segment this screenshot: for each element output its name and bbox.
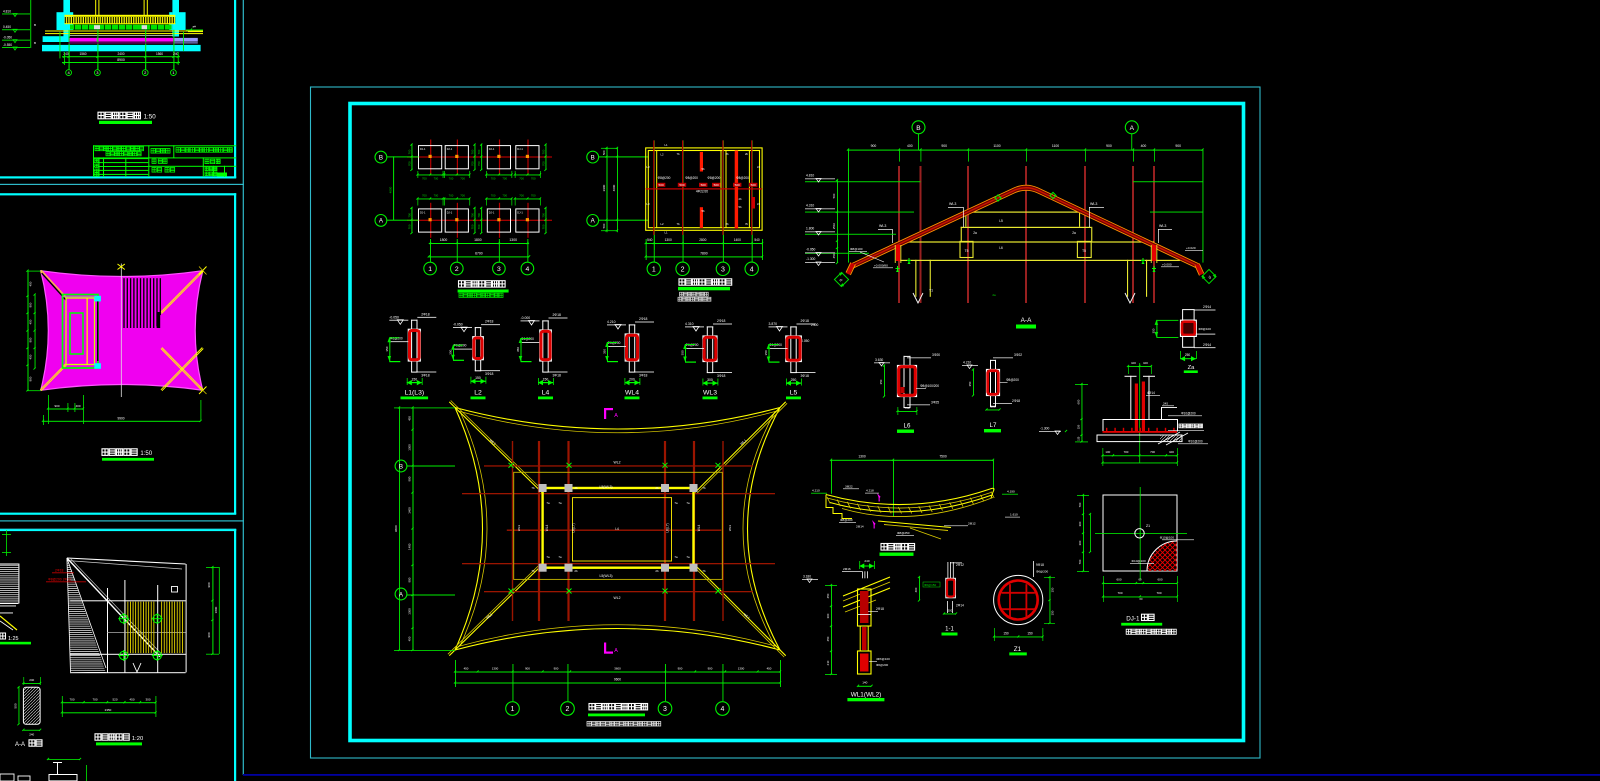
- svg-text:450: 450: [464, 667, 469, 671]
- svg-text:7b: 7b: [745, 222, 749, 226]
- svg-text:+0.020: +0.020: [1186, 246, 1196, 250]
- svg-text:4Φ22/20: 4Φ22/20: [696, 190, 709, 194]
- svg-text:300: 300: [707, 378, 713, 382]
- svg-text:7a: 7a: [558, 555, 562, 559]
- svg-text:2Φ18: 2Φ18: [639, 317, 647, 321]
- svg-text:2b: 2b: [738, 197, 742, 201]
- svg-text:3.630: 3.630: [875, 358, 883, 362]
- svg-text:300: 300: [1078, 521, 1082, 526]
- svg-text:3Φ18: 3Φ18: [485, 372, 493, 376]
- svg-text:7b: 7b: [676, 222, 680, 226]
- svg-text:245: 245: [1163, 402, 1168, 406]
- svg-text:7a: 7a: [546, 555, 550, 559]
- svg-text:2Φ14: 2Φ14: [1203, 343, 1211, 347]
- svg-text:9600: 9600: [394, 525, 398, 532]
- svg-text:3Φ18: 3Φ18: [801, 374, 809, 378]
- svg-text:L2: L2: [660, 222, 664, 226]
- svg-text:150: 150: [1077, 424, 1081, 429]
- svg-text:700: 700: [491, 194, 496, 198]
- svg-text:Φ8@200: Φ8@200: [1006, 378, 1019, 382]
- svg-text:DJ-1: DJ-1: [517, 210, 523, 214]
- svg-text:1560: 1560: [156, 52, 163, 56]
- svg-text:Φ10@200: Φ10@200: [1188, 440, 1203, 444]
- svg-text:+0.000: +0.000: [1162, 263, 1172, 267]
- svg-text:L4: L4: [615, 527, 619, 531]
- svg-text:500: 500: [714, 183, 719, 187]
- svg-text:700: 700: [460, 194, 465, 198]
- svg-text:240: 240: [29, 678, 34, 682]
- svg-text:-0.550: -0.550: [3, 43, 12, 47]
- svg-text:2b: 2b: [745, 152, 749, 156]
- svg-text:Φ8@200: Φ8@200: [685, 176, 698, 180]
- svg-text:100: 100: [1078, 436, 1081, 441]
- svg-text:2Φ18: 2Φ18: [717, 319, 725, 323]
- svg-text:500: 500: [751, 183, 756, 187]
- svg-text:DJ-1: DJ-1: [1126, 615, 1140, 622]
- svg-text:3Φ20: 3Φ20: [932, 353, 940, 357]
- svg-text:350: 350: [385, 346, 389, 351]
- svg-text:1800: 1800: [440, 238, 448, 242]
- svg-text:2Φ18: 2Φ18: [553, 313, 561, 317]
- svg-text:400: 400: [75, 404, 80, 408]
- svg-text:700: 700: [471, 161, 475, 166]
- svg-text:1: 1: [511, 706, 515, 713]
- svg-text:7a: 7a: [674, 555, 678, 559]
- svg-text:4.210: 4.210: [963, 361, 971, 365]
- svg-text:4.310: 4.310: [806, 204, 814, 208]
- svg-text:2Φ18: 2Φ18: [876, 607, 884, 611]
- svg-text:140: 140: [862, 680, 867, 684]
- svg-text:150: 150: [1051, 587, 1055, 592]
- svg-text:A-A: A-A: [15, 742, 25, 748]
- svg-text:Φ8@200 2Φ12: Φ8@200 2Φ12: [48, 578, 71, 582]
- svg-text:700: 700: [1078, 502, 1082, 507]
- svg-text:2Φ12: 2Φ12: [956, 563, 964, 567]
- svg-text:2b: 2b: [655, 486, 659, 490]
- svg-text:1100: 1100: [1052, 144, 1059, 148]
- svg-text:L2: L2: [474, 389, 482, 396]
- svg-text:L1: L1: [664, 231, 668, 235]
- svg-text:4: 4: [750, 266, 754, 273]
- svg-text:5b: 5b: [738, 205, 742, 209]
- svg-text:1300: 1300: [408, 444, 412, 451]
- svg-text:1300: 1300: [738, 667, 745, 671]
- svg-text:WL2: WL2: [614, 596, 621, 600]
- svg-text:2Φ18: 2Φ18: [485, 320, 493, 324]
- svg-text:540: 540: [754, 238, 760, 242]
- svg-text:1800: 1800: [474, 238, 482, 242]
- svg-text:700: 700: [408, 161, 412, 166]
- svg-text:900: 900: [554, 667, 559, 671]
- svg-text:T1: T1: [929, 289, 933, 293]
- svg-text:Z1: Z1: [1014, 646, 1022, 653]
- svg-text:WL3: WL3: [879, 224, 886, 228]
- svg-text:2800: 2800: [699, 238, 706, 242]
- svg-text:B: B: [916, 125, 921, 132]
- svg-text:9600: 9600: [614, 678, 621, 682]
- svg-text:3Φ18: 3Φ18: [639, 374, 647, 378]
- svg-text:-0.050: -0.050: [453, 323, 463, 327]
- svg-text:400: 400: [1141, 144, 1147, 148]
- svg-text:3.180: 3.180: [803, 575, 811, 579]
- svg-text:T5: T5: [965, 249, 969, 253]
- svg-text:210: 210: [826, 660, 830, 665]
- svg-text:Φ8@100: Φ8@100: [1199, 327, 1212, 331]
- svg-text:WL3: WL3: [703, 389, 717, 396]
- svg-text:2a: 2a: [1072, 231, 1076, 235]
- svg-text:450: 450: [826, 636, 830, 641]
- svg-text:350: 350: [879, 379, 883, 384]
- svg-text:A-A: A-A: [1021, 317, 1032, 324]
- svg-text:DJ-1: DJ-1: [489, 147, 495, 151]
- svg-text:100: 100: [1169, 450, 1174, 454]
- svg-text:450: 450: [767, 667, 772, 671]
- svg-text:1560: 1560: [79, 52, 86, 56]
- svg-text:450: 450: [29, 319, 33, 324]
- svg-text:350: 350: [1151, 328, 1155, 333]
- svg-text:150: 150: [475, 376, 481, 380]
- svg-text:2a: 2a: [992, 293, 996, 297]
- svg-text:5b: 5b: [701, 209, 705, 213]
- svg-text:Φ8@100/200: Φ8@100/200: [920, 384, 939, 388]
- svg-text:500: 500: [602, 150, 606, 155]
- svg-text:450: 450: [129, 698, 134, 702]
- svg-text:150: 150: [543, 378, 549, 382]
- svg-text:350: 350: [968, 381, 972, 386]
- svg-text:900: 900: [678, 667, 683, 671]
- svg-text:1.800: 1.800: [806, 227, 814, 231]
- svg-text:700: 700: [449, 194, 454, 198]
- svg-text:7a: 7a: [558, 501, 562, 505]
- svg-text:1:20: 1:20: [132, 736, 143, 742]
- svg-text:7b: 7b: [702, 486, 706, 490]
- svg-text:7a: 7a: [686, 555, 690, 559]
- svg-text:B: B: [399, 463, 403, 470]
- svg-text:700: 700: [502, 177, 507, 181]
- svg-text:Φ8@200: Φ8@200: [736, 176, 749, 180]
- svg-text:700: 700: [69, 698, 74, 702]
- svg-text:Φ8@200: Φ8@200: [707, 176, 720, 180]
- svg-text:L5: L5: [757, 202, 761, 206]
- svg-text:700: 700: [542, 149, 546, 154]
- svg-text:900: 900: [54, 404, 59, 408]
- svg-text:3.870: 3.870: [769, 322, 778, 326]
- svg-text:4: 4: [721, 706, 725, 713]
- svg-text:4.210: 4.210: [812, 489, 820, 493]
- svg-text:2a: 2a: [973, 231, 977, 235]
- svg-text:100: 100: [1131, 361, 1136, 365]
- svg-text:900: 900: [408, 577, 412, 582]
- svg-text:Φ10@100: Φ10@100: [1160, 536, 1174, 540]
- svg-text:L5: L5: [999, 219, 1003, 223]
- svg-text:4Φ14: 4Φ14: [1147, 391, 1155, 395]
- svg-text:700: 700: [92, 698, 97, 702]
- svg-text:500: 500: [735, 183, 740, 187]
- svg-text:WL3: WL3: [1159, 224, 1166, 228]
- svg-text:1:50: 1:50: [144, 113, 157, 120]
- svg-text:WL3: WL3: [949, 202, 956, 206]
- svg-text:2Φ18: 2Φ18: [801, 319, 809, 323]
- svg-text:L3: L3: [646, 165, 650, 169]
- svg-text:700: 700: [491, 177, 496, 181]
- svg-text:500: 500: [832, 193, 836, 198]
- svg-text:WL3: WL3: [517, 525, 521, 532]
- svg-text:2Φ16: 2Φ16: [843, 567, 851, 571]
- svg-text:350: 350: [681, 350, 685, 355]
- svg-text:7b: 7b: [531, 569, 535, 573]
- svg-text:250: 250: [791, 378, 797, 382]
- svg-text:4.210: 4.210: [607, 320, 616, 324]
- svg-text:700: 700: [408, 213, 412, 218]
- svg-text:3: 3: [663, 706, 667, 713]
- svg-text:500: 500: [679, 183, 684, 187]
- svg-text:900: 900: [1106, 144, 1112, 148]
- svg-text:1: 1: [652, 266, 656, 273]
- svg-text:1300: 1300: [408, 608, 412, 615]
- svg-text:L1: L1: [664, 143, 668, 147]
- svg-text:2: 2: [455, 266, 459, 273]
- svg-text:600: 600: [1157, 578, 1162, 582]
- svg-text:6700: 6700: [475, 252, 483, 256]
- svg-text:WL1(WL2): WL1(WL2): [851, 691, 882, 698]
- svg-text:2b: 2b: [655, 569, 659, 573]
- svg-text:700: 700: [422, 194, 427, 198]
- svg-text:2: 2: [681, 266, 685, 273]
- svg-text:700: 700: [471, 213, 475, 218]
- svg-text:1400: 1400: [734, 238, 741, 242]
- svg-text:750: 750: [904, 406, 909, 410]
- svg-text:700: 700: [502, 194, 507, 198]
- svg-text:Z1: Z1: [1146, 524, 1150, 528]
- svg-text:WL3: WL3: [728, 525, 732, 532]
- svg-text:A: A: [614, 413, 618, 419]
- svg-text:L4: L4: [542, 389, 550, 396]
- svg-text:-0.050: -0.050: [3, 36, 12, 40]
- svg-text:150: 150: [411, 378, 417, 382]
- svg-text:WL3: WL3: [1090, 202, 1097, 206]
- svg-text:4.218: 4.218: [866, 489, 874, 493]
- svg-text:3Φ18: 3Φ18: [553, 374, 561, 378]
- svg-text:-0.050: -0.050: [806, 248, 816, 252]
- svg-text:100: 100: [1143, 361, 1148, 365]
- svg-text:7b: 7b: [676, 152, 680, 156]
- svg-text:200: 200: [948, 609, 953, 613]
- svg-text:4.810: 4.810: [3, 9, 11, 13]
- svg-text:500: 500: [701, 183, 706, 187]
- svg-text:400: 400: [907, 144, 913, 148]
- svg-text:WL4: WL4: [697, 525, 701, 532]
- svg-text:350: 350: [516, 347, 520, 352]
- svg-text:7500: 7500: [939, 455, 947, 459]
- svg-text:Φ8@250: Φ8@250: [897, 531, 910, 535]
- svg-text:700: 700: [1124, 450, 1129, 454]
- svg-text:1:25: 1:25: [8, 636, 19, 642]
- svg-text:3Φ22: 3Φ22: [1014, 353, 1022, 357]
- svg-text:a#: a#: [193, 25, 197, 29]
- svg-text:4000: 4000: [389, 186, 393, 193]
- svg-text:3Φ25: 3Φ25: [931, 401, 939, 405]
- svg-text:350: 350: [764, 350, 768, 355]
- svg-text:450: 450: [832, 253, 836, 258]
- svg-text:Φ10@100: Φ10@100: [1132, 559, 1146, 563]
- svg-text:L1(L3): L1(L3): [404, 389, 424, 396]
- svg-text:DJ-1: DJ-1: [420, 147, 426, 151]
- svg-text:700: 700: [542, 224, 546, 229]
- svg-text:7800: 7800: [700, 252, 708, 256]
- svg-text:700: 700: [542, 213, 546, 218]
- svg-text:L6: L6: [904, 423, 911, 430]
- svg-text:9900: 9900: [117, 416, 124, 420]
- svg-text:-0.050: -0.050: [389, 315, 399, 319]
- svg-text:2Φ12: 2Φ12: [968, 522, 976, 526]
- svg-text:1400: 1400: [408, 543, 412, 550]
- svg-text:L5(WL3): L5(WL3): [599, 485, 612, 489]
- svg-text:4: 4: [526, 266, 530, 273]
- svg-text:2Φ14: 2Φ14: [856, 525, 864, 529]
- svg-text:2b: 2b: [725, 222, 729, 226]
- svg-text:2Φ18: 2Φ18: [421, 312, 429, 316]
- svg-text:250: 250: [1185, 353, 1191, 357]
- svg-text:700: 700: [519, 177, 524, 181]
- svg-text:L5: L5: [790, 389, 798, 396]
- svg-text:2900: 2900: [602, 184, 606, 191]
- svg-text:1100: 1100: [993, 144, 1000, 148]
- svg-text:900: 900: [207, 582, 211, 587]
- svg-text:2b: 2b: [574, 569, 578, 573]
- svg-text:700: 700: [477, 213, 481, 218]
- svg-text:WL4: WL4: [625, 389, 639, 396]
- svg-text:700: 700: [471, 149, 475, 154]
- svg-text:Φ8@100: Φ8@100: [850, 247, 863, 251]
- svg-text:Φ10@200: Φ10@200: [1181, 412, 1196, 416]
- svg-text:7b: 7b: [531, 486, 535, 490]
- svg-text:900: 900: [29, 337, 33, 342]
- svg-text:4.810: 4.810: [806, 174, 814, 178]
- svg-text:700: 700: [519, 194, 524, 198]
- svg-text:4000: 4000: [612, 184, 616, 191]
- svg-text:-1.300: -1.300: [1040, 427, 1050, 431]
- svg-text:350: 350: [603, 349, 607, 354]
- svg-text:5b: 5b: [701, 167, 705, 171]
- svg-text:700: 700: [422, 177, 427, 181]
- svg-text:B: B: [34, 41, 36, 45]
- svg-text:600: 600: [1116, 578, 1121, 582]
- svg-text:1:50: 1:50: [140, 451, 152, 457]
- svg-text:900: 900: [871, 144, 877, 148]
- svg-text:450: 450: [408, 416, 412, 421]
- svg-text:9Φ18: 9Φ18: [1036, 563, 1044, 567]
- svg-text:700: 700: [408, 149, 412, 154]
- svg-text:WL4: WL4: [545, 525, 549, 532]
- svg-text:B: B: [34, 23, 36, 27]
- svg-text:150: 150: [1027, 632, 1033, 636]
- svg-text:700: 700: [449, 177, 454, 181]
- svg-text:700: 700: [460, 177, 465, 181]
- svg-text:500: 500: [659, 183, 664, 187]
- svg-text:Φ6@200: Φ6@200: [876, 663, 888, 667]
- svg-text:7a: 7a: [674, 501, 678, 505]
- svg-text:700: 700: [1156, 591, 1161, 595]
- svg-text:900: 900: [408, 476, 412, 481]
- svg-text:L6(L7): L6(L7): [572, 523, 576, 532]
- svg-text:L5: L5: [757, 165, 761, 169]
- svg-text:520: 520: [112, 698, 117, 702]
- svg-text:150: 150: [1003, 632, 1009, 636]
- svg-text:3Φ18: 3Φ18: [421, 374, 429, 378]
- svg-text:900: 900: [525, 667, 530, 671]
- svg-text:450: 450: [29, 354, 33, 359]
- svg-text:1: 1: [428, 266, 432, 273]
- svg-text:4.310: 4.310: [685, 322, 694, 326]
- svg-text:Φ8@200: Φ8@200: [840, 518, 853, 522]
- svg-text:700: 700: [471, 224, 475, 229]
- svg-text:240: 240: [864, 559, 869, 563]
- svg-text:WL2: WL2: [614, 461, 621, 465]
- svg-text:A: A: [614, 648, 618, 654]
- svg-text:DJ-1: DJ-1: [447, 210, 453, 214]
- svg-text:7a: 7a: [546, 501, 550, 505]
- svg-text:4.190: 4.190: [1007, 490, 1015, 494]
- svg-text:100: 100: [1105, 450, 1110, 454]
- svg-text:300: 300: [826, 613, 830, 618]
- svg-text:DJ-1: DJ-1: [420, 210, 426, 214]
- svg-text:1300: 1300: [492, 667, 499, 671]
- svg-text:700: 700: [531, 194, 536, 198]
- svg-text:3: 3: [721, 266, 725, 273]
- svg-text:-1.300: -1.300: [806, 257, 816, 261]
- svg-text:200: 200: [629, 378, 635, 382]
- svg-text:L6(L7): L6(L7): [666, 523, 670, 532]
- svg-text:2b: 2b: [725, 152, 729, 156]
- svg-text:2Φ14: 2Φ14: [1203, 305, 1211, 309]
- svg-text:700: 700: [408, 224, 412, 229]
- svg-text:1.610: 1.610: [1010, 513, 1018, 517]
- svg-text:2400: 2400: [117, 52, 124, 56]
- svg-text:1400: 1400: [408, 507, 412, 514]
- svg-text:300: 300: [145, 698, 150, 702]
- svg-text:7b: 7b: [702, 569, 706, 573]
- svg-text:900: 900: [29, 376, 33, 381]
- svg-text:+0.000/80: +0.000/80: [874, 264, 888, 268]
- svg-text:450: 450: [826, 593, 830, 598]
- svg-text:200: 200: [990, 405, 995, 409]
- svg-text:1300: 1300: [665, 238, 672, 242]
- svg-text:B: B: [591, 154, 595, 161]
- svg-text:700: 700: [477, 161, 481, 166]
- svg-text:500: 500: [602, 223, 606, 228]
- svg-text:450: 450: [29, 281, 33, 286]
- svg-text:700: 700: [1117, 591, 1122, 595]
- svg-text:4Φ6@100: 4Φ6@100: [876, 657, 890, 661]
- svg-text:DJ-1: DJ-1: [447, 147, 453, 151]
- svg-text:240: 240: [29, 733, 34, 737]
- svg-text:L3: L3: [646, 202, 650, 206]
- svg-text:3Φ18: 3Φ18: [717, 374, 725, 378]
- svg-text:2Φ18: 2Φ18: [1012, 399, 1020, 403]
- svg-text:2: 2: [566, 706, 570, 713]
- svg-text:3: 3: [497, 266, 501, 273]
- svg-text:900: 900: [1175, 144, 1181, 148]
- svg-text:700: 700: [1150, 450, 1155, 454]
- svg-text:900: 900: [29, 302, 33, 307]
- svg-text:DJ-1: DJ-1: [517, 147, 523, 151]
- svg-text:L2: L2: [660, 153, 664, 157]
- svg-text:700: 700: [477, 224, 481, 229]
- svg-text:L5(WL3): L5(WL3): [599, 574, 612, 578]
- svg-text:500: 500: [14, 703, 18, 708]
- svg-text:700: 700: [434, 177, 439, 181]
- svg-text:700: 700: [477, 149, 481, 154]
